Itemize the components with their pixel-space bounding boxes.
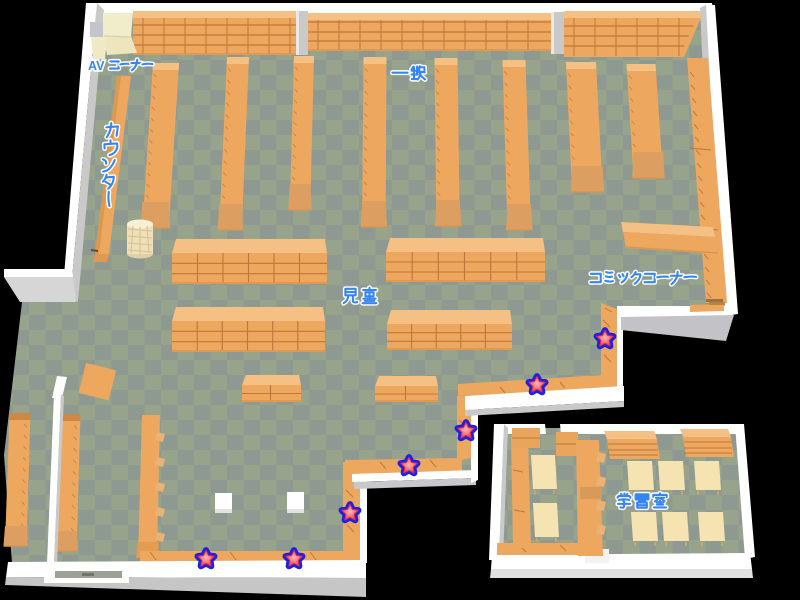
svg-text:AV: AV [88,59,105,73]
